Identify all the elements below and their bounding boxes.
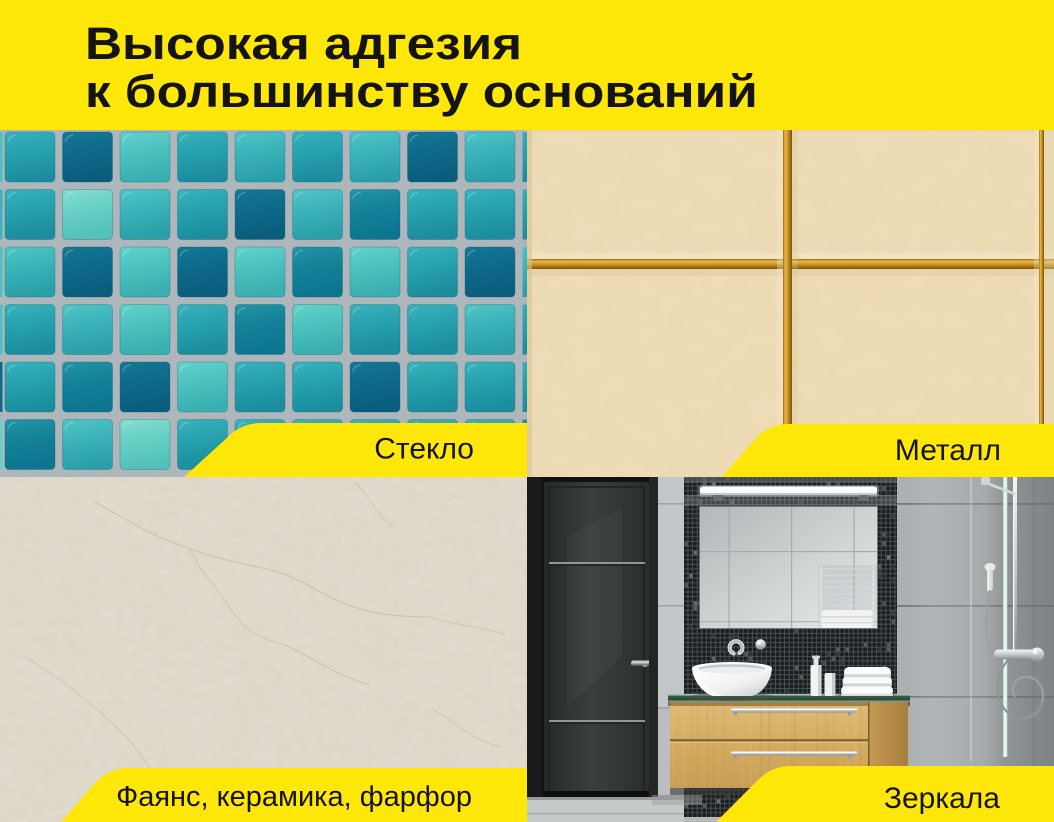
svg-text:Металл: Металл — [895, 434, 1001, 467]
svg-text:Стекло: Стекло — [374, 433, 474, 466]
svg-text:Фаянс, керамика, фарфор: Фаянс, керамика, фарфор — [116, 781, 472, 813]
svg-text:Зеркала: Зеркала — [884, 782, 1000, 815]
